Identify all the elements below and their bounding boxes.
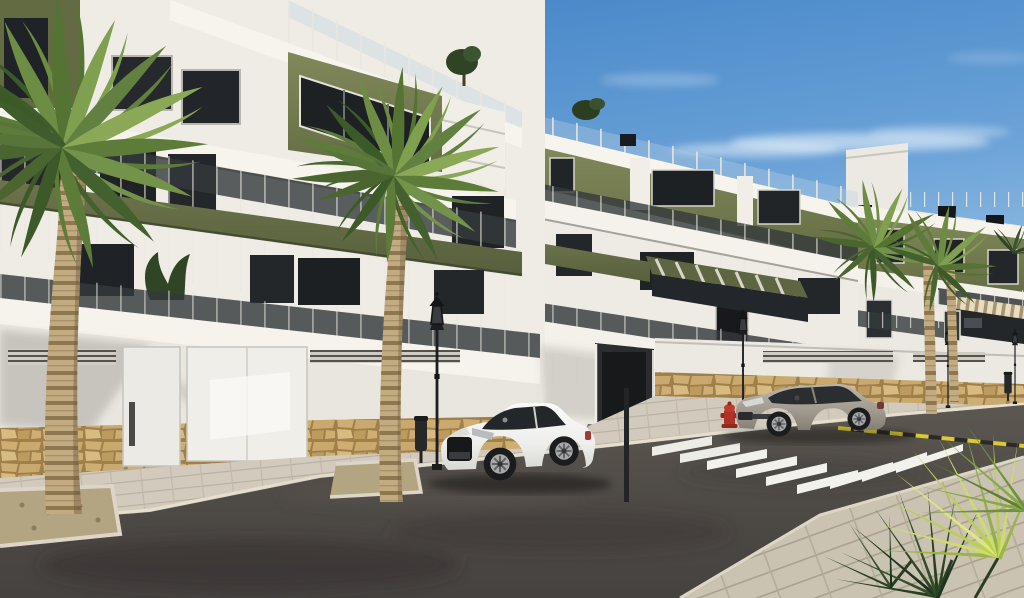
garage-door-small [123,347,180,466]
scene-canvas [0,0,1024,598]
garage-door-large [187,347,307,461]
architectural-render [0,0,1024,598]
signpost [624,388,629,502]
vent-grille [763,351,893,363]
